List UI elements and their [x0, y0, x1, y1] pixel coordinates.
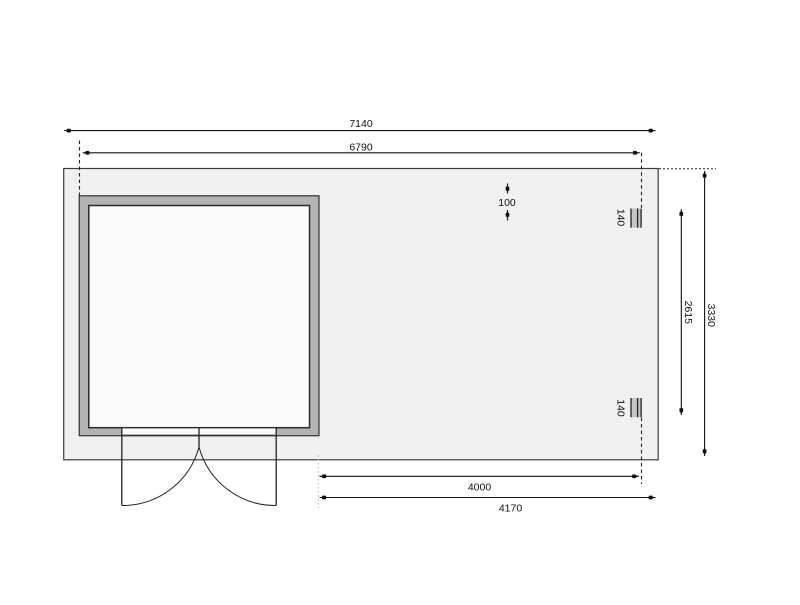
svg-text:3330: 3330: [705, 304, 717, 328]
svg-text:100: 100: [498, 197, 516, 209]
svg-text:140: 140: [615, 399, 627, 417]
svg-text:7140: 7140: [349, 118, 373, 130]
svg-text:4170: 4170: [499, 503, 523, 515]
svg-text:140: 140: [615, 209, 627, 227]
svg-text:4000: 4000: [468, 482, 492, 494]
svg-text:2615: 2615: [682, 301, 694, 325]
svg-text:6790: 6790: [349, 141, 373, 153]
